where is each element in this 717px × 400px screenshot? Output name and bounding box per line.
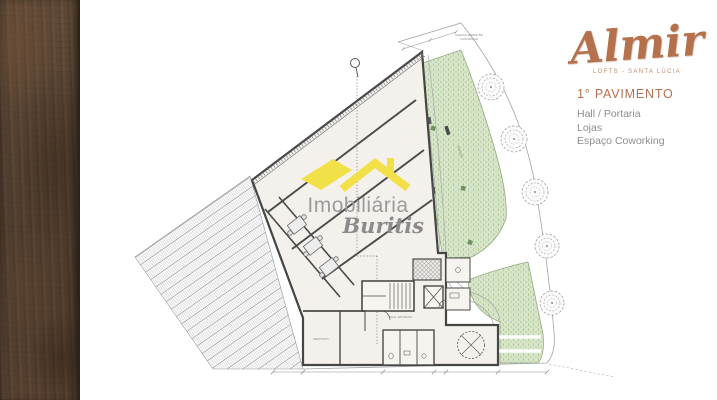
watermark-buritis: Buritis (278, 215, 438, 236)
floor-feature-item: Hall / Portaria (577, 108, 674, 122)
floor-feature-item: Espaço Coworking (577, 135, 674, 149)
light-post-icon (351, 59, 360, 78)
brown-texture-stripe (0, 0, 80, 400)
plan-label-hall: HALL ENTRADA (390, 315, 413, 319)
plan-label-access2: COWORKING (460, 37, 478, 41)
plan-label-deposito: DEPÓSITO (313, 336, 329, 341)
logo-almir: Almir (569, 19, 706, 71)
floor-info-panel: 1° PAVIMENTO Hall / Portaria Lojas Espaç… (577, 87, 674, 149)
floor-title: 1° PAVIMENTO (577, 87, 674, 101)
house-roof-icon (295, 149, 421, 193)
brand-block: Almir LOFTS - SANTA LÚCIA (561, 24, 713, 75)
watermark: Imobiliária Buritis (278, 149, 438, 236)
floor-feature-item: Lojas (577, 122, 674, 136)
elevator (424, 286, 443, 308)
